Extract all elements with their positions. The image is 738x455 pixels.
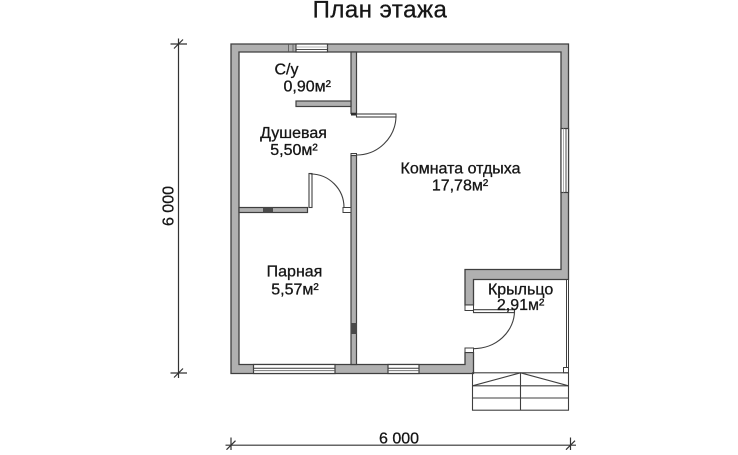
svg-text:0,90м²: 0,90м² [284,79,332,96]
svg-text:5,57м²: 5,57м² [271,282,319,299]
svg-text:6 000: 6 000 [161,186,178,226]
svg-text:5,50м²: 5,50м² [270,142,318,159]
svg-text:План этажа: План этажа [313,0,448,24]
svg-text:Крыльцо: Крыльцо [488,281,553,298]
svg-text:Комната отдыха: Комната отдыха [401,161,521,178]
svg-text:Душевая: Душевая [260,125,327,142]
svg-text:2,91м²: 2,91м² [497,297,545,314]
svg-text:6 000: 6 000 [379,431,419,448]
svg-text:Парная: Парная [267,264,323,281]
svg-text:С/у: С/у [275,62,299,79]
svg-text:17,78м²: 17,78м² [432,178,489,195]
